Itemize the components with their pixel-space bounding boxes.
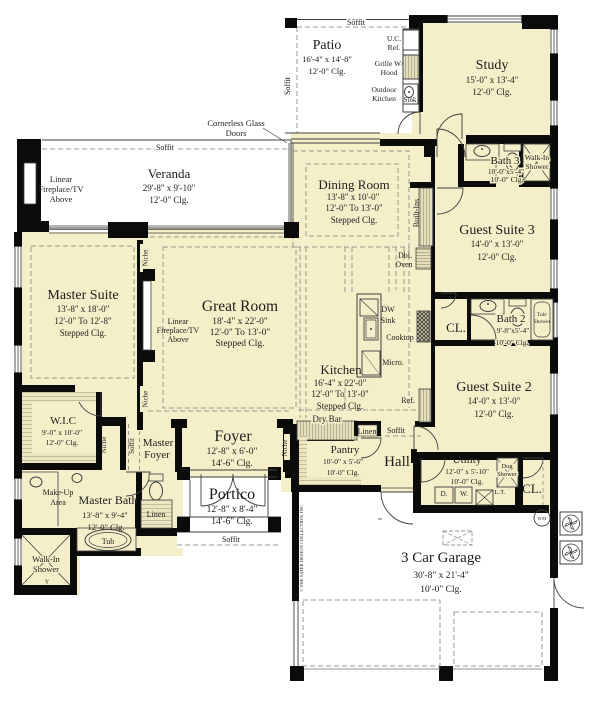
svg-text:W.I.C: W.I.C	[50, 415, 76, 427]
svg-text:Fireplace/TV: Fireplace/TV	[38, 184, 84, 194]
svg-text:Niche: Niche	[142, 391, 150, 408]
svg-text:12'-0" x 5'-10": 12'-0" x 5'-10"	[445, 467, 489, 476]
svg-text:W/H: W/H	[538, 516, 547, 521]
svg-text:Stepped Clg.: Stepped Clg.	[331, 215, 378, 225]
svg-text:Patio: Patio	[313, 38, 342, 53]
svg-text:Soffit: Soffit	[156, 143, 175, 152]
svg-text:Soffit: Soffit	[347, 18, 366, 27]
svg-text:10'-0" Clg.: 10'-0" Clg.	[420, 585, 461, 595]
svg-text:Ref.: Ref.	[401, 396, 415, 405]
svg-text:Dog: Dog	[501, 463, 513, 470]
svg-text:Bath 3: Bath 3	[490, 155, 520, 167]
svg-text:Stepped Clg.: Stepped Clg.	[60, 328, 107, 338]
svg-text:18'-4" x 22'-0": 18'-4" x 22'-0"	[212, 317, 268, 327]
svg-text:Soffit: Soffit	[128, 438, 136, 454]
svg-text:U.C.: U.C.	[387, 34, 401, 43]
svg-text:Above: Above	[167, 335, 189, 344]
svg-text:Built-Ins: Built-Ins	[412, 199, 421, 227]
svg-text:12'-8" x 8'-4": 12'-8" x 8'-4"	[207, 505, 258, 515]
svg-text:Utility: Utility	[453, 454, 482, 466]
svg-text:Hood: Hood	[381, 68, 398, 77]
svg-text:Shower: Shower	[534, 319, 551, 325]
svg-text:Study: Study	[476, 58, 509, 73]
svg-text:Stepped Clg.: Stepped Clg.	[317, 401, 364, 411]
svg-text:Shower: Shower	[526, 162, 549, 171]
svg-text:14'-6" Clg.: 14'-6" Clg.	[211, 459, 252, 469]
svg-text:Linen: Linen	[147, 510, 166, 519]
svg-text:D.: D.	[441, 490, 448, 498]
svg-text:Kitchen: Kitchen	[320, 362, 362, 377]
svg-text:9'-0" x 10'-0": 9'-0" x 10'-0"	[42, 428, 82, 437]
svg-text:Linear: Linear	[168, 317, 189, 326]
svg-text:Guest Suite 2: Guest Suite 2	[456, 380, 531, 395]
svg-text:Dry Bar: Dry Bar	[312, 414, 341, 424]
svg-text:CL.: CL.	[446, 320, 466, 335]
svg-text:Pantry: Pantry	[331, 444, 360, 456]
svg-text:10'-0" Clg.: 10'-0" Clg.	[491, 175, 524, 184]
svg-text:Dbl.: Dbl.	[398, 251, 412, 260]
svg-text:13'-8" x 9'-4": 13'-8" x 9'-4"	[82, 510, 127, 520]
svg-text:10'-0" Clg.: 10'-0" Clg.	[451, 477, 484, 486]
svg-text:10'-0" x 5'-6": 10'-0" x 5'-6"	[323, 457, 363, 466]
svg-text:12'-0" Clg.: 12'-0" Clg.	[87, 522, 124, 532]
svg-text:L.T.: L.T.	[495, 489, 506, 496]
svg-text:12'-0" To 13'-0": 12'-0" To 13'-0"	[210, 328, 271, 338]
svg-text:Micro.: Micro.	[382, 358, 404, 367]
svg-text:13'-8" x 10'-0": 13'-8" x 10'-0"	[327, 192, 380, 202]
svg-text:Veranda: Veranda	[148, 166, 191, 181]
svg-text:Niche: Niche	[142, 250, 150, 267]
svg-text:CL.: CL.	[522, 481, 542, 496]
svg-text:Foyer: Foyer	[214, 428, 252, 445]
svg-text:12'-0" Clg.: 12'-0" Clg.	[477, 252, 516, 262]
svg-text:Guest Suite 3: Guest Suite 3	[459, 223, 534, 238]
svg-text:14'-6" Clg.: 14'-6" Clg.	[211, 517, 252, 527]
svg-text:30'-8" x 21'-4": 30'-8" x 21'-4"	[413, 571, 469, 581]
svg-text:12'-0" Clg.: 12'-0" Clg.	[308, 66, 345, 76]
svg-text:14'-0" x 13'-0": 14'-0" x 13'-0"	[471, 239, 524, 249]
svg-text:Ref.: Ref.	[388, 43, 401, 52]
svg-text:Kitchen: Kitchen	[372, 94, 396, 103]
svg-text:Master: Master	[143, 437, 174, 449]
svg-text:Outdoor: Outdoor	[372, 85, 398, 94]
svg-text:12'-0" Clg.: 12'-0" Clg.	[472, 87, 511, 97]
svg-text:Oven: Oven	[395, 260, 412, 269]
svg-text:Master Bath: Master Bath	[79, 493, 138, 507]
svg-text:12'-0" To 13'-0": 12'-0" To 13'-0"	[311, 389, 369, 399]
svg-text:Stepped Clg.: Stepped Clg.	[215, 339, 264, 349]
svg-text:Hall: Hall	[384, 454, 410, 470]
svg-text:Cornerless Glass: Cornerless Glass	[207, 118, 264, 128]
svg-text:12'-8" x 6'-0": 12'-8" x 6'-0"	[207, 447, 258, 457]
svg-text:Linear: Linear	[50, 174, 72, 184]
svg-text:Master Suite: Master Suite	[47, 288, 118, 303]
svg-text:Soffit: Soffit	[283, 76, 292, 95]
svg-text:Above: Above	[50, 194, 73, 204]
svg-text:12'-0" Clg.: 12'-0" Clg.	[46, 438, 79, 447]
svg-text:Bath 2: Bath 2	[496, 313, 525, 325]
svg-text:Niche: Niche	[100, 437, 108, 454]
svg-text:Great Room: Great Room	[202, 298, 278, 315]
svg-text:12'-0" To 12'-8": 12'-0" To 12'-8"	[54, 316, 112, 326]
svg-text:Soffit: Soffit	[222, 535, 241, 544]
svg-text:Portico: Portico	[209, 486, 255, 503]
svg-text:Y: Y	[45, 580, 50, 586]
svg-text:Area: Area	[50, 498, 66, 507]
svg-text:Sink: Sink	[381, 316, 396, 325]
svg-text:9'-8"x5'-4": 9'-8"x5'-4"	[497, 326, 530, 335]
svg-text:12'-0" To 13'-0": 12'-0" To 13'-0"	[325, 203, 383, 213]
svg-text:Shower: Shower	[33, 564, 59, 574]
svg-text:16'-4" x 22'-0": 16'-4" x 22'-0"	[314, 378, 367, 388]
svg-text:Linen: Linen	[358, 427, 377, 436]
svg-text:10'-0" Clg.: 10'-0" Clg.	[496, 338, 529, 347]
svg-text:Grille W/: Grille W/	[375, 59, 404, 68]
svg-text:13'-8" x 18'-0": 13'-8" x 18'-0"	[57, 304, 110, 314]
svg-text:Walk-In: Walk-In	[32, 554, 60, 564]
svg-text:Foyer: Foyer	[144, 449, 170, 461]
svg-text:Tub/: Tub/	[537, 312, 548, 318]
svg-text:Walk-In: Walk-In	[525, 153, 550, 162]
svg-text:15'-0" x 13'-4": 15'-0" x 13'-4"	[466, 75, 519, 85]
svg-text:Shower: Shower	[497, 471, 518, 478]
svg-text:Fireplace/TV: Fireplace/TV	[157, 326, 200, 335]
svg-text:DW: DW	[381, 305, 395, 314]
svg-text:12'-0" Clg.: 12'-0" Clg.	[474, 409, 513, 419]
svg-text:Dining Room: Dining Room	[318, 177, 389, 192]
svg-text:3 Car Garage: 3 Car Garage	[401, 550, 481, 566]
svg-text:29'-8" x 9'-10": 29'-8" x 9'-10"	[143, 183, 196, 193]
svg-text:Make-Up: Make-Up	[43, 488, 74, 497]
svg-text:Niche: Niche	[281, 440, 289, 457]
svg-text:Soffit: Soffit	[387, 426, 406, 435]
svg-text:12'-0" Clg.: 12'-0" Clg.	[149, 195, 188, 205]
svg-text:Doors: Doors	[226, 128, 247, 138]
svg-text:Sink: Sink	[404, 96, 417, 104]
svg-text:Tub: Tub	[102, 537, 115, 546]
svg-text:14'-0" x 13'-0": 14'-0" x 13'-0"	[468, 396, 521, 406]
svg-text:16'-4" x 14'-8": 16'-4" x 14'-8"	[302, 54, 352, 64]
svg-text:Cooktop: Cooktop	[386, 333, 414, 342]
svg-text:10'-0" Clg.: 10'-0" Clg.	[327, 468, 360, 477]
svg-text:W.: W.	[460, 490, 468, 498]
